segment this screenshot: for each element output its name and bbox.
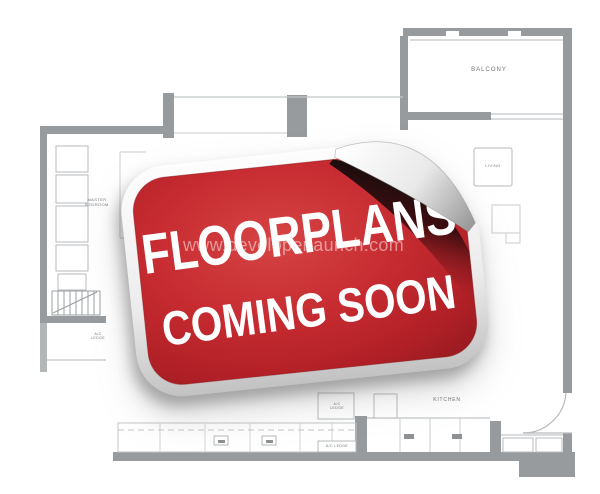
watermark-text: www.developerlaunch.com xyxy=(183,235,404,256)
page: BALCONY LIVING KITCHEN A/C LEDGE A/C LED… xyxy=(0,0,600,494)
door-arc xyxy=(523,393,572,433)
room-label-balcony: BALCONY xyxy=(471,67,507,75)
coming-soon-sticker: FLOORPLANS COMING SOON xyxy=(100,117,510,417)
room-label-ac-ledge-bottom: A/C LEDGE xyxy=(326,444,348,448)
hatch-wardrobe xyxy=(52,291,100,315)
